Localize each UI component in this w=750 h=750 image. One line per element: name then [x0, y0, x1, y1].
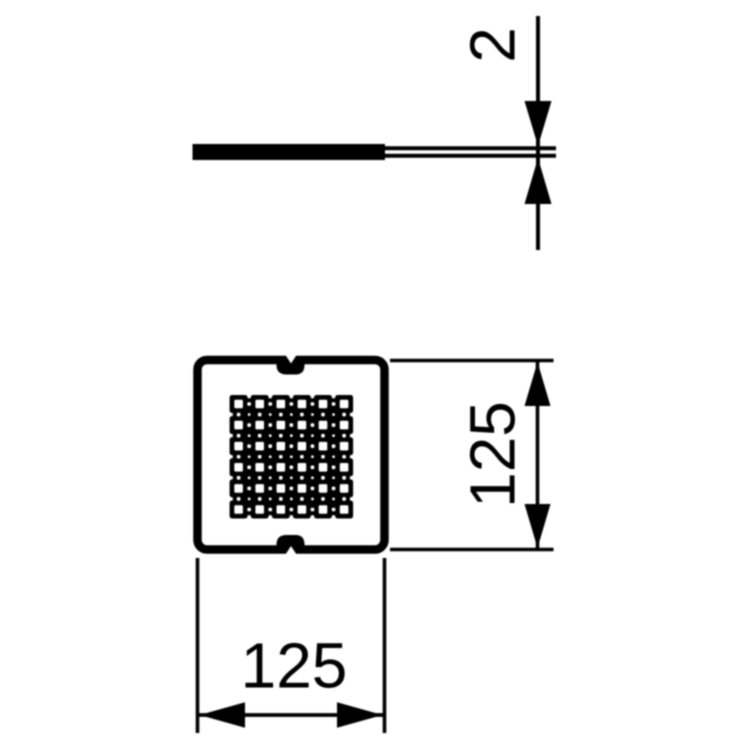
svg-text:2: 2	[457, 27, 529, 63]
svg-text:125: 125	[457, 401, 529, 508]
svg-text:125: 125	[241, 630, 348, 702]
